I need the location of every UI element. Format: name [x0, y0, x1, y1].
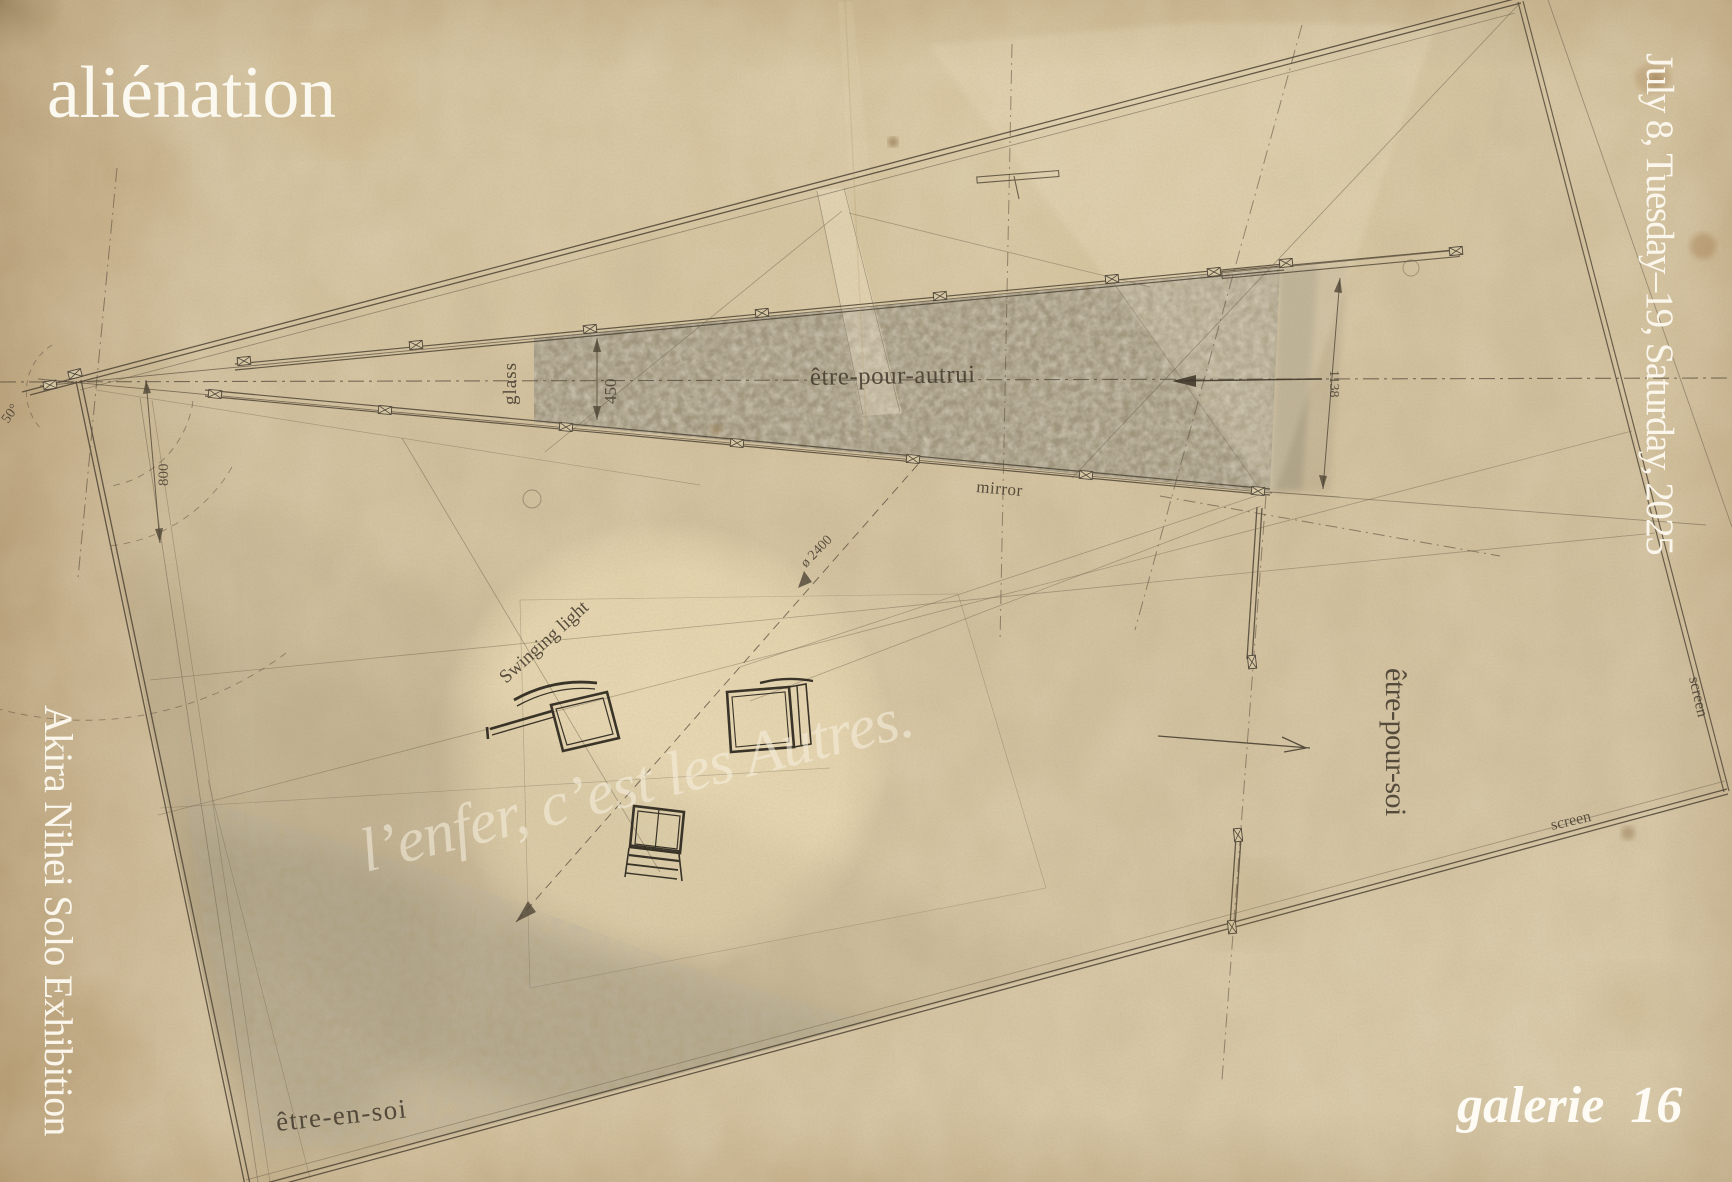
svg-text:galerie 16: galerie 16 — [1456, 1077, 1682, 1134]
svg-text:July 8, Tuesday–19, Saturday,: July 8, Tuesday–19, Saturday, 2025 — [1638, 53, 1681, 554]
svg-text:Akira Nihei Solo Exhibition: Akira Nihei Solo Exhibition — [36, 705, 81, 1136]
svg-text:aliénation: aliénation — [47, 52, 336, 134]
